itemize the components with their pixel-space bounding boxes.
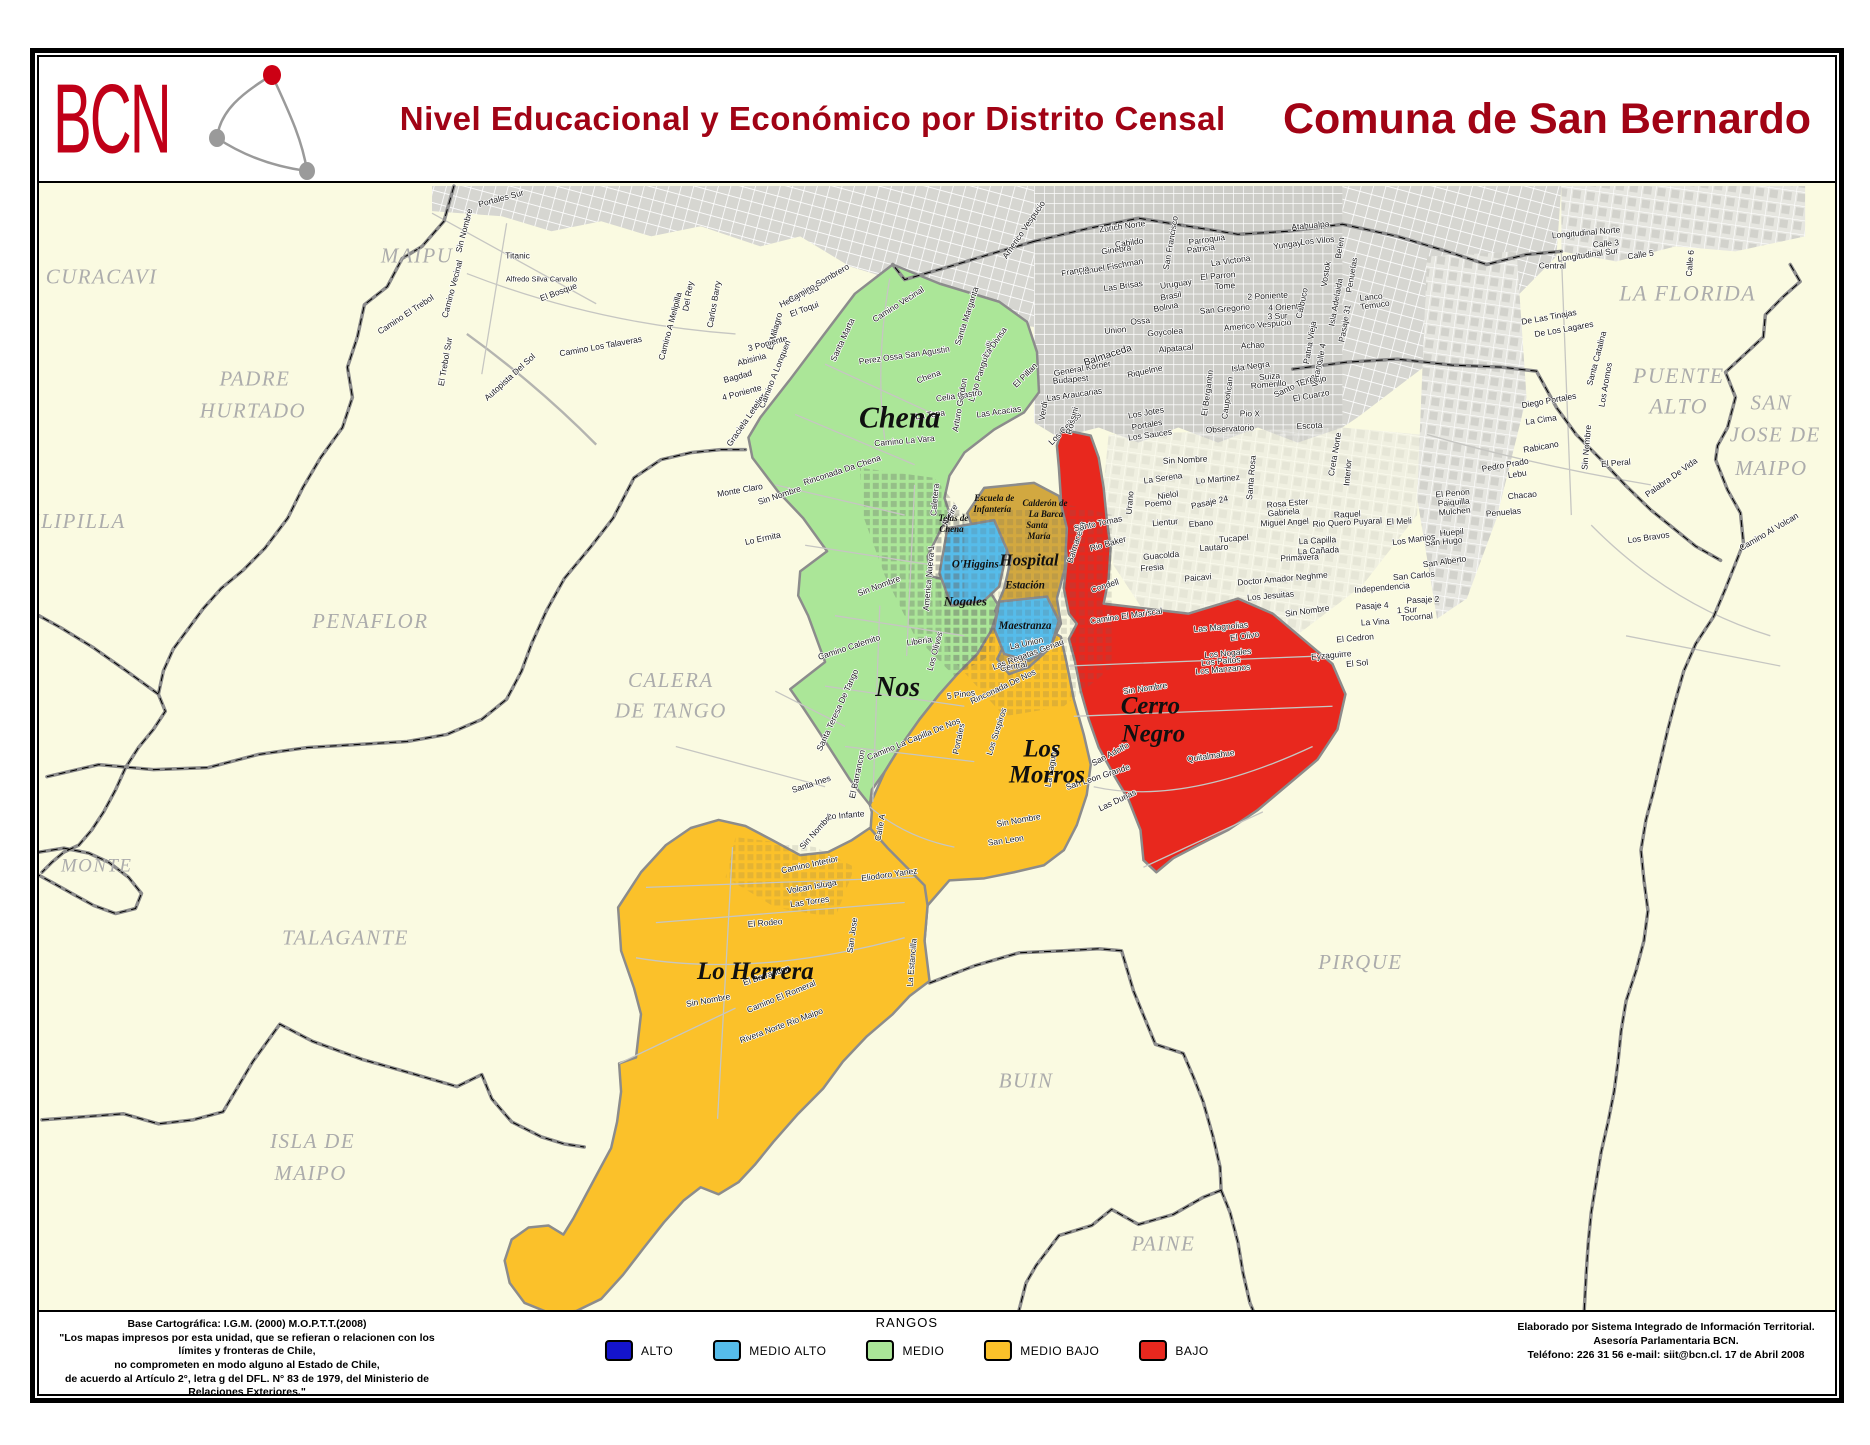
legend-swatch-medio_alto bbox=[713, 1340, 741, 1361]
street-label: Huepil bbox=[1439, 526, 1464, 538]
street-label: El Meli bbox=[1386, 515, 1412, 526]
commune-label: PUENTE bbox=[1632, 363, 1725, 388]
street-label: La Vina bbox=[1361, 616, 1390, 628]
commune-label: CURACAVI bbox=[46, 265, 158, 289]
legend-item-medio: MEDIO bbox=[866, 1340, 944, 1361]
district-label: Nos bbox=[874, 672, 920, 703]
commune-label: MELIPILLA bbox=[39, 509, 126, 533]
legend-row: ALTOMEDIO ALTOMEDIOMEDIO BAJOBAJO bbox=[605, 1340, 1209, 1361]
map-sheet: BCN Nivel Educacional y Económico por Di… bbox=[30, 48, 1844, 1403]
footer-credits: Elaborado por Sistema Integrado de Infor… bbox=[1499, 1320, 1833, 1363]
legend: RANGOS ALTOMEDIO ALTOMEDIOMEDIO BAJOBAJO bbox=[605, 1315, 1209, 1361]
commune-label: CALERA bbox=[628, 668, 714, 692]
commune-label: PIRQUE bbox=[1317, 950, 1402, 974]
commune-label: TALAGANTE bbox=[282, 926, 409, 950]
district-label: Escuela de bbox=[973, 493, 1014, 503]
disclaimer-line: "Los mapas impresos por esta unidad, que… bbox=[45, 1332, 449, 1359]
district-label: María bbox=[1027, 531, 1051, 541]
credits-line: Asesoría Parlamentaria BCN. bbox=[1499, 1334, 1833, 1348]
legend-swatch-medio_bajo bbox=[984, 1340, 1012, 1361]
commune-label: PADRE bbox=[218, 366, 290, 390]
commune-label: LA FLORIDA bbox=[1618, 281, 1756, 306]
commune-label: MAIPO bbox=[273, 1161, 346, 1185]
commune-label: ISLA DE bbox=[269, 1129, 355, 1153]
legend-title: RANGOS bbox=[605, 1315, 1209, 1330]
street-label: Titanic bbox=[505, 250, 530, 260]
region-title: Comuna de San Bernardo bbox=[1283, 95, 1811, 144]
commune-label: BUIN bbox=[999, 1069, 1054, 1093]
commune-label: MAIPO bbox=[1734, 456, 1807, 480]
footer-disclaimer: Base Cartográfica: I.G.M. (2000) M.O.P.T… bbox=[45, 1318, 449, 1400]
map-canvas: Portales SurSin NombreCamino VecinalTita… bbox=[39, 181, 1835, 1312]
credits-line: Elaborado por Sistema Integrado de Infor… bbox=[1499, 1320, 1833, 1334]
legend-label-alto: ALTO bbox=[641, 1344, 673, 1358]
district-label: Calderón de bbox=[1022, 498, 1067, 508]
street-label: El Sol bbox=[1346, 657, 1369, 669]
district-label: Cerro bbox=[1121, 692, 1180, 719]
street-label: Union bbox=[1104, 324, 1127, 336]
street-label: Ossa bbox=[1130, 315, 1151, 327]
bcn-logo-mark bbox=[202, 63, 352, 181]
street-label: 2 Poniente bbox=[1247, 290, 1288, 302]
street-label: Lautaro bbox=[1199, 541, 1228, 553]
district-label: Nogales bbox=[943, 594, 987, 609]
street-label: Escota bbox=[1296, 420, 1323, 431]
legend-label-medio_bajo: MEDIO BAJO bbox=[1020, 1344, 1099, 1358]
disclaimer-line: de acuerdo al Artículo 2°, letra g del D… bbox=[45, 1373, 449, 1400]
map-svg: Portales SurSin NombreCamino VecinalTita… bbox=[39, 183, 1835, 1310]
sheet-inner-frame: BCN Nivel Educacional y Económico por Di… bbox=[37, 55, 1837, 1396]
footer: Base Cartográfica: I.G.M. (2000) M.O.P.T… bbox=[39, 1312, 1835, 1394]
district-label: Negro bbox=[1121, 720, 1186, 747]
commune-label: HURTADO bbox=[199, 398, 306, 422]
district-label: Los bbox=[1022, 735, 1060, 762]
legend-item-bajo: BAJO bbox=[1139, 1340, 1208, 1361]
legend-swatch-medio bbox=[866, 1340, 894, 1361]
street-label: Central bbox=[1539, 260, 1566, 270]
legend-label-medio: MEDIO bbox=[902, 1344, 944, 1358]
district-label: Estación bbox=[1004, 579, 1045, 591]
street-label: Urano bbox=[1124, 490, 1136, 514]
legend-swatch-bajo bbox=[1139, 1340, 1167, 1361]
legend-label-medio_alto: MEDIO ALTO bbox=[749, 1344, 826, 1358]
commune-label: MAIPU bbox=[380, 243, 454, 267]
commune-label: MONTE bbox=[60, 855, 132, 876]
commune-label: DE TANGO bbox=[614, 698, 727, 722]
logo-gray-dot-1 bbox=[209, 129, 225, 147]
commune-label: PAINE bbox=[1130, 1232, 1195, 1256]
logo-gray-dot-2 bbox=[299, 162, 315, 180]
district-label: Morros bbox=[1008, 762, 1085, 789]
street-label: Pio X bbox=[1240, 408, 1261, 418]
street-label: Primavera bbox=[1280, 551, 1319, 563]
legend-label-bajo: BAJO bbox=[1175, 1344, 1208, 1358]
street-label: Fresia bbox=[1140, 561, 1165, 573]
district-label: Tejas de bbox=[939, 513, 969, 523]
street-label: Pasaje 4 bbox=[1355, 600, 1389, 612]
district-label: Chena bbox=[939, 524, 964, 534]
district-label: Chena bbox=[859, 401, 940, 434]
disclaimer-line: no comprometen en modo alguno al Estado … bbox=[45, 1359, 449, 1373]
district-label: Infantería bbox=[972, 504, 1011, 514]
street-label: Tome bbox=[1214, 280, 1235, 291]
legend-item-alto: ALTO bbox=[605, 1340, 673, 1361]
commune-label: ALTO bbox=[1647, 393, 1708, 418]
street-label: Raquel bbox=[1334, 508, 1361, 519]
disclaimer-line: Base Cartográfica: I.G.M. (2000) M.O.P.T… bbox=[45, 1318, 449, 1332]
district-label: Lo Herrera bbox=[696, 958, 814, 985]
page-title: Nivel Educacional y Económico por Distri… bbox=[400, 100, 1226, 138]
header: BCN Nivel Educacional y Económico por Di… bbox=[39, 57, 1835, 181]
commune-label: PENAFLOR bbox=[311, 609, 428, 633]
district-label: O'Higgins bbox=[952, 558, 999, 570]
street-label: Achao bbox=[1241, 339, 1266, 350]
legend-item-medio_alto: MEDIO ALTO bbox=[713, 1340, 826, 1361]
logo-red-dot bbox=[263, 65, 281, 85]
district-label: Hospital bbox=[998, 550, 1058, 569]
district-label: Santa bbox=[1026, 520, 1048, 530]
district-label: La Barca bbox=[1028, 509, 1064, 519]
district-label: Maestranza bbox=[998, 620, 1052, 632]
legend-item-medio_bajo: MEDIO BAJO bbox=[984, 1340, 1099, 1361]
commune-label: JOSE DE bbox=[1730, 422, 1821, 446]
bcn-logo-text: BCN bbox=[53, 70, 170, 169]
credits-line: Teléfono: 226 31 56 e-mail: siit@bcn.cl.… bbox=[1499, 1348, 1833, 1362]
street-label: Alfredo Silva Carvallo bbox=[506, 275, 577, 284]
legend-swatch-alto bbox=[605, 1340, 633, 1361]
commune-label: SAN bbox=[1751, 390, 1793, 414]
